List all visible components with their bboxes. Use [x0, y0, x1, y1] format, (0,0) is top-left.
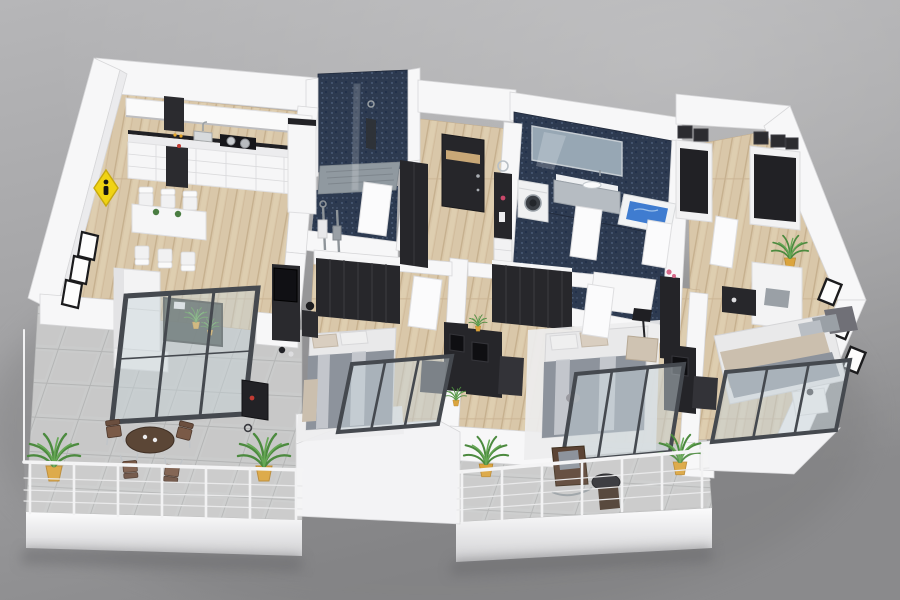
bed2-pillow — [550, 334, 578, 350]
pink-flowers — [666, 269, 671, 274]
bed1-throw — [302, 379, 318, 422]
storage-box — [694, 129, 708, 141]
wall-frame — [78, 232, 98, 260]
vase — [499, 212, 505, 222]
bedroom3-window — [712, 360, 850, 442]
lounge-coffee-table — [722, 286, 756, 316]
floor-plan-svg — [0, 0, 900, 600]
glass — [338, 356, 452, 432]
red-kettle — [177, 144, 181, 148]
bed2-chair — [498, 356, 524, 396]
bed1-pillow — [340, 331, 368, 345]
range-hood — [164, 96, 184, 132]
bed1-lamp — [306, 302, 314, 310]
wardrobe2 — [492, 264, 572, 330]
red-flower — [501, 196, 506, 201]
bedroom1-window — [338, 356, 452, 432]
glass-screen — [352, 84, 360, 190]
bed1-sheet-fold — [316, 354, 330, 429]
bath-door-left — [570, 206, 602, 260]
wall-frame — [62, 280, 82, 308]
door-lock — [477, 189, 480, 192]
dining-chair — [158, 249, 172, 268]
dining-chair — [161, 189, 175, 208]
bed2-monitor — [472, 342, 488, 362]
terrace-table — [126, 427, 174, 453]
shelf-a-interior — [680, 148, 708, 214]
grill-coals — [250, 396, 255, 401]
towel — [318, 220, 327, 238]
pot — [227, 137, 235, 145]
sign-glyph-head — [104, 180, 109, 185]
floor-vase — [288, 351, 293, 356]
bed1-door — [408, 276, 442, 330]
jar — [173, 133, 176, 136]
washer-drum — [529, 199, 536, 206]
bed3-chair — [692, 376, 718, 410]
loveseat-cushion — [764, 288, 790, 308]
door-handle — [476, 174, 480, 178]
dining-chair — [139, 187, 153, 206]
sink — [194, 131, 212, 142]
cup — [153, 438, 157, 442]
jar — [179, 134, 182, 137]
dining-area — [132, 187, 206, 271]
dining-chair — [183, 191, 197, 210]
storage-box — [771, 135, 785, 147]
bed2-door — [582, 284, 614, 338]
living-sliding-door — [112, 288, 258, 422]
floor-plan-render — [0, 0, 900, 600]
tv-screen — [274, 268, 297, 302]
table-flowers — [175, 211, 181, 217]
table-decor — [732, 298, 737, 303]
shower-door — [358, 182, 392, 236]
storage-box — [678, 126, 692, 138]
storage-box — [754, 132, 768, 144]
floor-lamp-shade — [632, 308, 652, 322]
tall-oven-unit — [166, 146, 188, 188]
shower-navy-wall — [318, 70, 408, 172]
shelf-b-interior — [754, 154, 796, 222]
pink-flowers — [672, 274, 676, 278]
dining-chair — [135, 246, 149, 265]
sign-glyph-body — [104, 186, 109, 195]
front-door — [442, 134, 484, 212]
barbecue-grill — [242, 380, 268, 420]
storage-box — [786, 138, 798, 149]
towel — [333, 226, 341, 240]
shower-column — [366, 118, 376, 150]
bed1-monitor — [450, 334, 464, 352]
sink-basin — [583, 182, 601, 189]
table-flowers — [153, 209, 159, 215]
pan — [241, 139, 250, 148]
dining-chair — [181, 252, 195, 271]
floor-vase — [279, 347, 285, 353]
wall-frame — [70, 256, 90, 284]
kitchen-return-cabinet — [288, 118, 316, 214]
cup — [143, 435, 147, 439]
beige-armchair — [626, 336, 658, 362]
bed1-nightstand — [302, 310, 318, 338]
bed2-desk — [466, 328, 502, 398]
